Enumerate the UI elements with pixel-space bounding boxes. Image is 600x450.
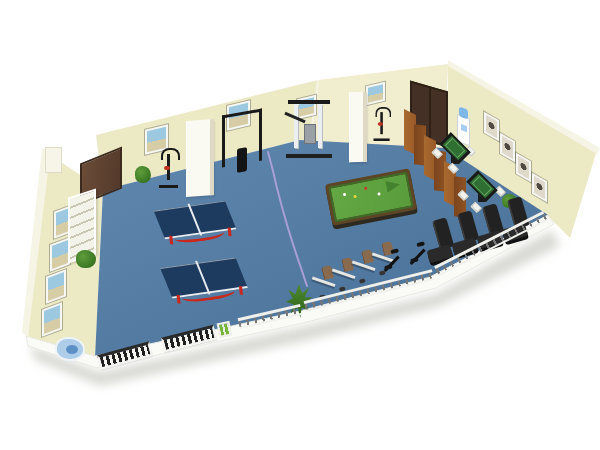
bike-handlebar [390,248,399,254]
multi-gym-machine [286,98,332,158]
bike-handlebar [161,148,180,160]
drinking-fountain [55,337,85,361]
bike-handlebar [375,107,391,117]
bike-frame [384,256,400,272]
table-leg [228,227,232,236]
pillar [349,92,367,163]
bike-base [159,185,178,188]
pillar [186,119,214,197]
machine-post [318,104,322,148]
door-split-line [429,88,431,141]
machine-post [294,104,298,148]
potted-plant [135,166,151,183]
pull-up-rack [222,108,262,167]
picture-photo [44,305,60,334]
picture-sketch [534,176,545,199]
room-render [0,0,600,450]
bike-pedal [359,278,366,283]
bike-base [374,138,390,141]
fountain-basin [66,345,78,354]
picture-photo [48,272,64,301]
upright-exercise-bike [372,107,392,141]
bike-seat [378,122,383,125]
picture-sketch [486,115,497,138]
weight-stack [304,124,316,144]
picture-sketch [502,136,513,159]
hanging-plant [76,250,96,268]
picture-photo [368,84,383,102]
bike-seat [164,166,170,170]
wall-cap [45,147,62,173]
bike-frame [410,249,426,265]
table-leg [177,295,181,304]
upright-exercise-bike [157,148,181,188]
machine-base [286,154,332,158]
table-leg [239,286,243,295]
dispenser-panel [461,124,467,132]
power-box [217,321,233,338]
picture-photo [52,240,68,269]
bike-handlebar [416,241,425,247]
picture-sketch [518,156,529,179]
rack-pad [237,147,247,173]
